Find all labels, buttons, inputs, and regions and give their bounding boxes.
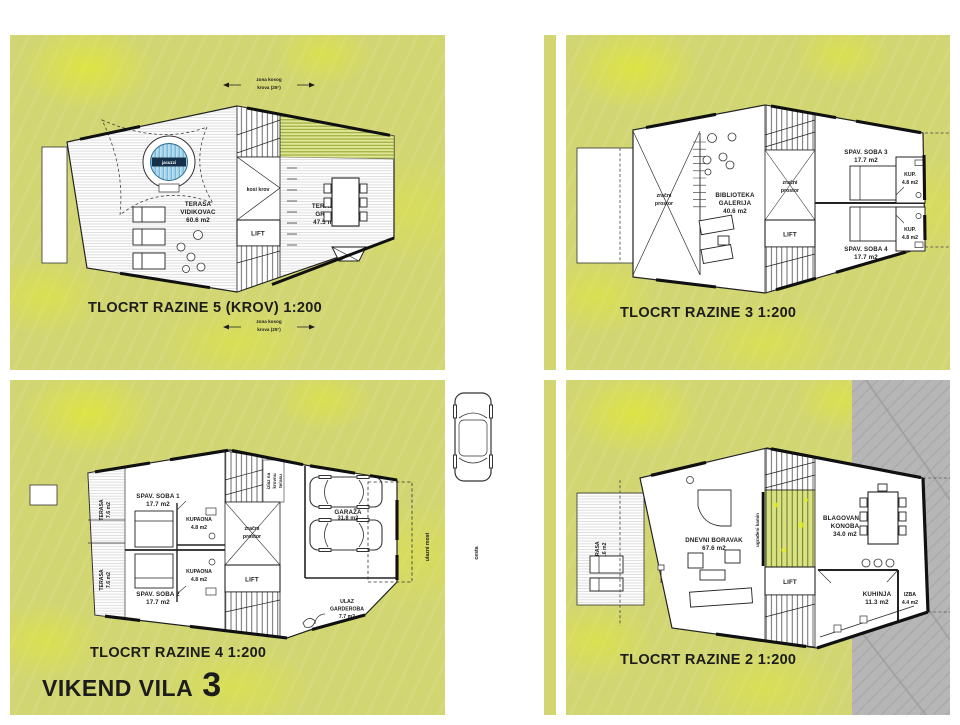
zracni-prostor-label1: zračni bbox=[245, 526, 261, 532]
kupaona1-area: 4.8 m2 bbox=[191, 525, 207, 531]
plan-sheet: zona kosog krova (25°) kosi krov LIFT bbox=[0, 0, 960, 725]
bed bbox=[850, 207, 896, 241]
zone-note-line1: zona kosog bbox=[256, 319, 281, 324]
room-name: KUP. bbox=[904, 227, 916, 233]
room-area: 17.7 m2 bbox=[146, 501, 170, 508]
sink bbox=[206, 588, 216, 595]
lift-label: LIFT bbox=[783, 579, 797, 586]
sheet-title: VIKEND VILA 3 bbox=[42, 666, 221, 705]
toilet bbox=[209, 559, 215, 565]
void-center: zračni prostor bbox=[765, 150, 815, 220]
room-area: 4.8 m2 bbox=[902, 235, 918, 241]
road-strip: cesta bbox=[445, 35, 545, 715]
arrow-right-icon bbox=[309, 83, 315, 88]
kupaona1-name: KUPAONA bbox=[186, 517, 212, 523]
terasa2-area: 7.6 m2 bbox=[106, 572, 112, 588]
room-name2: GALERIJA bbox=[719, 200, 752, 207]
sink bbox=[915, 242, 923, 248]
room-area: 11.3 m2 bbox=[865, 599, 889, 606]
arrow-right-icon bbox=[309, 325, 315, 330]
lift: LIFT bbox=[765, 220, 815, 247]
kupaona2-name: KUPAONA bbox=[186, 569, 212, 575]
room-area: 67.6 m2 bbox=[702, 545, 726, 552]
lounger bbox=[590, 578, 623, 591]
stair-lower bbox=[765, 595, 815, 647]
roof-zone-note-top: zona kosog krova (25°) bbox=[223, 77, 315, 90]
room-name: SPAV. SOBA 3 bbox=[844, 149, 888, 156]
green-lightwell bbox=[765, 490, 815, 567]
green-strip-top bbox=[544, 35, 556, 370]
bathroom3: KUP. 4.8 m2 bbox=[896, 157, 925, 203]
zracni-prostor-label2: prostor bbox=[655, 201, 673, 207]
room-area: 4.4 m2 bbox=[902, 600, 918, 606]
sheet-title-number: 3 bbox=[202, 666, 221, 705]
lift: LIFT bbox=[765, 567, 815, 595]
zone-note-line2: krova (25°) bbox=[257, 327, 281, 332]
cesta-label: cesta bbox=[474, 546, 480, 559]
room-area: 34.0 m2 bbox=[833, 531, 857, 538]
zone-note-line2: krova (25°) bbox=[257, 85, 281, 90]
room-name: KUP. bbox=[904, 172, 916, 178]
room-name: ULAZ bbox=[340, 599, 355, 605]
piano-stool bbox=[687, 477, 694, 484]
bathroom4: KUP. 4.8 m2 bbox=[896, 207, 925, 251]
arrow-left-icon bbox=[223, 83, 229, 88]
toilet bbox=[916, 213, 921, 218]
room-area: 17.7 m2 bbox=[854, 157, 878, 164]
sloped-roof-section: kosi krov bbox=[237, 157, 280, 220]
bed bbox=[135, 511, 173, 547]
lift-label: LIFT bbox=[783, 232, 797, 239]
green-roof-band bbox=[280, 114, 394, 159]
lift-label: LIFT bbox=[251, 231, 265, 238]
lift: LIFT bbox=[225, 565, 280, 592]
terrace-west: TERASA 23.6 m2 bbox=[577, 493, 644, 605]
bed bbox=[135, 554, 173, 588]
room-name: DNEVNI BORAVAK bbox=[685, 537, 743, 544]
caption-level4: TLOCRT RAZINE 4 1:200 bbox=[90, 645, 266, 661]
toilet bbox=[916, 192, 921, 197]
bed bbox=[850, 166, 896, 200]
caption-level2: TLOCRT RAZINE 2 1:200 bbox=[620, 652, 796, 668]
stair-lower bbox=[225, 592, 280, 636]
room-area: 60.6 m2 bbox=[186, 217, 210, 224]
sink bbox=[834, 625, 841, 632]
caption-level3: TLOCRT RAZINE 3 1:200 bbox=[620, 305, 796, 321]
sun-loungers bbox=[133, 207, 165, 269]
room-name: IZBA bbox=[904, 592, 916, 598]
room-area: 17.7 m2 bbox=[146, 599, 170, 606]
terasa2-name: TERASA bbox=[99, 569, 105, 591]
garaza-area: 31.8 m2 bbox=[338, 516, 359, 522]
car-1 bbox=[310, 476, 382, 509]
izlaz-note-line3: terasu bbox=[278, 474, 283, 488]
floor-plan-level3: zračni prostor BIBLIOTEKA GALERIJA 40.6 … bbox=[566, 35, 950, 370]
room-area: 40.6 m2 bbox=[723, 208, 747, 215]
floor-plan-level2: TERASA 23.6 m2 DNEVNI BORAVAK 67.6 m2 bbox=[566, 380, 950, 715]
room-name: TERASA bbox=[185, 201, 212, 208]
caption-level5: TLOCRT RAZINE 5 (KROV) 1:200 bbox=[88, 300, 322, 316]
pendant-lights bbox=[862, 559, 894, 567]
room-area: 4.8 m2 bbox=[902, 180, 918, 186]
zone-note-line1: zona kosog bbox=[256, 77, 281, 82]
izlaz-note-line1: izlaz na bbox=[266, 472, 271, 489]
lounger bbox=[590, 556, 623, 573]
car-2 bbox=[310, 519, 382, 552]
lift-roof: LIFT bbox=[237, 220, 280, 246]
dining-table-roof bbox=[324, 178, 367, 226]
ugradeni-kamin-label: ugrađeni kamin bbox=[755, 513, 760, 547]
room-name2: KONOBA bbox=[831, 523, 860, 530]
floor-plan-level5: zona kosog krova (25°) kosi krov LIFT bbox=[10, 35, 445, 370]
room-name2: GARDEROBA bbox=[330, 607, 364, 613]
arrow-left-icon bbox=[223, 325, 229, 330]
room-name: BIBLIOTEKA bbox=[715, 192, 755, 199]
terasa1-area: 7.6 m2 bbox=[106, 502, 112, 518]
void-center: zračni prostor bbox=[225, 502, 280, 565]
kupaona2-area: 4.8 m2 bbox=[191, 577, 207, 583]
room-name: SPAV. SOBA 4 bbox=[844, 246, 888, 253]
west-ledge bbox=[30, 485, 57, 505]
sink bbox=[915, 160, 923, 166]
toilet bbox=[209, 533, 215, 539]
sink bbox=[206, 508, 216, 515]
ulazni-most-label: ulazni most bbox=[425, 532, 431, 561]
terasa1-name: TERASA bbox=[99, 499, 105, 521]
izlaz-note-line2: krovnu bbox=[272, 473, 277, 489]
roof-west-ledge bbox=[42, 147, 67, 263]
room-name: SPAV. SOBA 1 bbox=[136, 493, 180, 500]
zracni-prostor-label1: zračni bbox=[657, 193, 673, 199]
site-dashed-lines bbox=[925, 133, 950, 247]
room-name2: VIDIKOVAC bbox=[180, 209, 216, 216]
car-on-road bbox=[454, 393, 493, 481]
roof-zone-note-bottom: zona kosog krova (25°) bbox=[223, 319, 315, 332]
jacuzzi-label: jacuzzi bbox=[161, 160, 176, 165]
zracni-prostor-label2: prostor bbox=[243, 534, 261, 540]
room-name: SPAV. SOBA 2 bbox=[136, 591, 180, 598]
floor-plan-level4: TERASA 7.6 m2 TERASA 7.6 m2 SPAV. SOBA 1… bbox=[10, 380, 445, 715]
green-strip-bottom bbox=[544, 380, 556, 715]
sheet-title-text: VIKEND VILA bbox=[42, 675, 193, 702]
zracni-prostor-label1: zračni bbox=[783, 180, 799, 186]
zracni-prostor-label2: prostor bbox=[781, 188, 799, 194]
room-name: KUHINJA bbox=[863, 591, 892, 598]
stove bbox=[860, 616, 867, 623]
lift-label: LIFT bbox=[245, 577, 259, 584]
open-terrace-west bbox=[577, 148, 633, 263]
kosi-krov-label: kosi krov bbox=[247, 187, 270, 193]
